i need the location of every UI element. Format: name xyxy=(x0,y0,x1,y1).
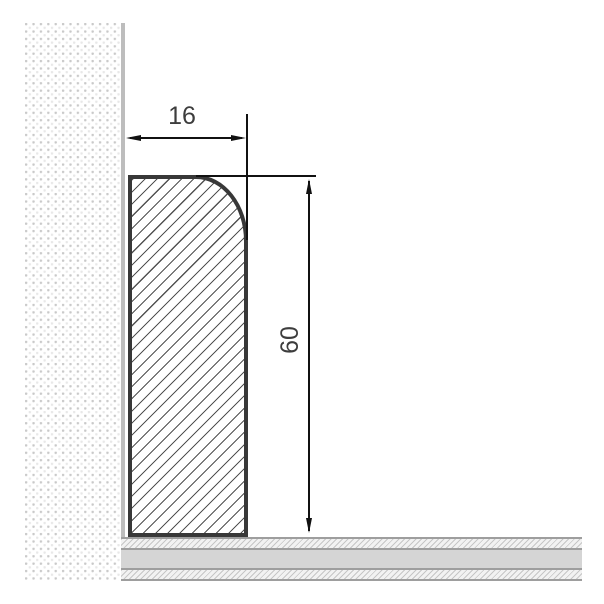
drawing-canvas: 16 60 xyxy=(0,0,604,604)
wall-surface-line xyxy=(121,23,125,537)
width-dimension-line xyxy=(130,137,242,139)
skirting-profile-cross-section xyxy=(128,175,248,537)
floor-hatch-band-bottom xyxy=(121,570,582,579)
height-dimension-line xyxy=(308,181,310,531)
height-dimension-label: 60 xyxy=(275,312,305,368)
dimension-arrow-down-icon xyxy=(306,518,312,533)
floor-hatch-band-top xyxy=(121,539,582,548)
extension-line-vertical xyxy=(246,114,248,240)
wall-section xyxy=(25,23,121,581)
dimension-arrow-left-icon xyxy=(126,135,141,141)
extension-line-horizontal xyxy=(196,175,316,177)
floor-layer-divider xyxy=(121,579,582,581)
dimension-arrow-up-icon xyxy=(306,179,312,194)
dimension-arrow-right-icon xyxy=(231,135,246,141)
width-dimension-label: 16 xyxy=(154,101,210,131)
floor-core-band xyxy=(121,550,582,568)
floor-section xyxy=(121,537,582,581)
